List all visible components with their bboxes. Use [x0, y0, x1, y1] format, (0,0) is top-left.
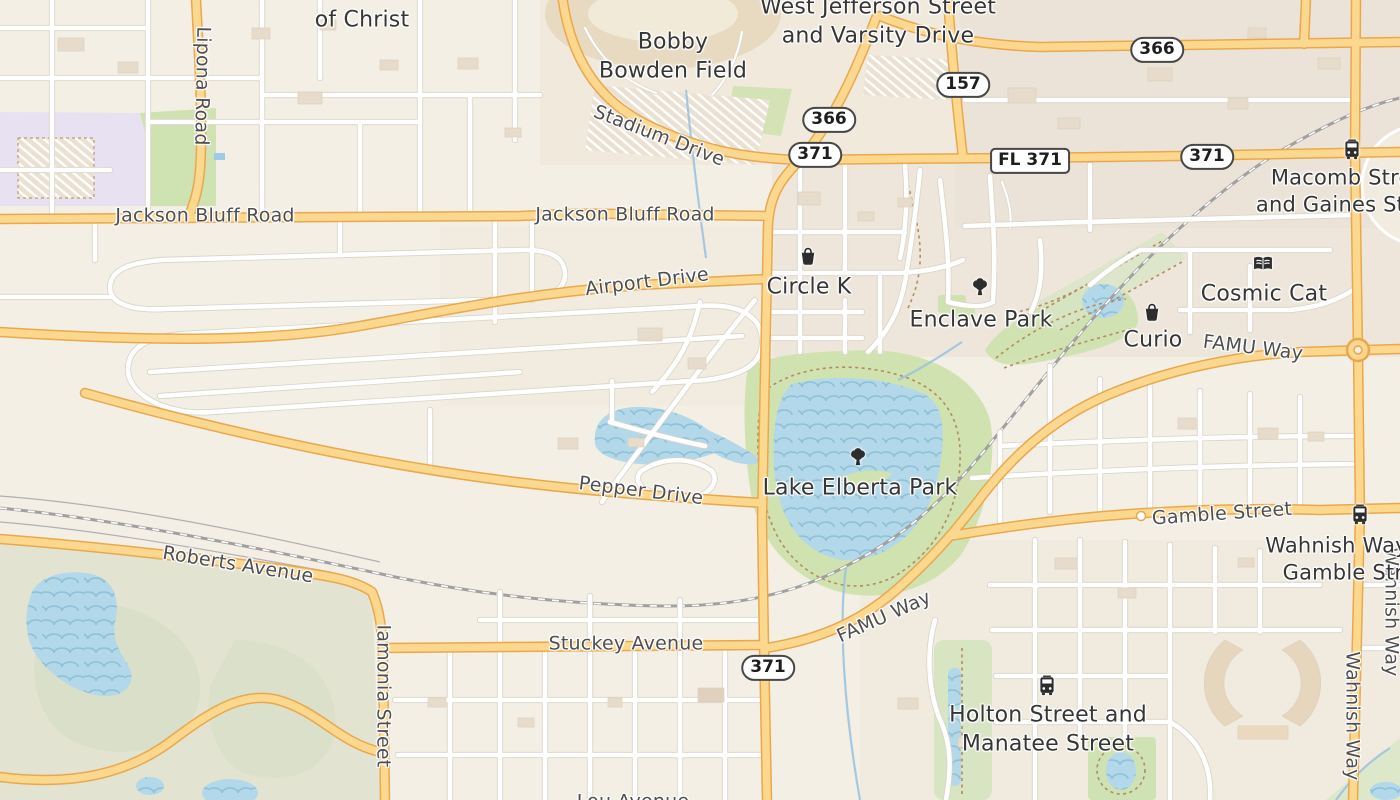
- map-label-famu-way-ne: FAMU Way: [1202, 330, 1305, 367]
- map-label-wahnish-way-e: Wahnish Way: [1379, 547, 1400, 676]
- bus-icon[interactable]: [1349, 504, 1371, 526]
- map-label-lou-avenue: Lou Avenue: [577, 790, 690, 800]
- route-shield-fl-371: FL 371: [990, 148, 1070, 174]
- route-shield-366: 366: [1130, 37, 1184, 63]
- bag-icon[interactable]: [1141, 301, 1163, 323]
- map-label-pepper-drive: Pepper Drive: [577, 471, 704, 511]
- map-label-roberts-avenue: Roberts Avenue: [161, 541, 315, 589]
- route-shield-371: 371: [741, 655, 795, 681]
- map-label-stadium-drive: Stadium Drive: [590, 100, 728, 173]
- map-label-west-jefferson-varsity[interactable]: West Jefferson Street and Varsity Drive: [760, 0, 996, 51]
- map-label-iamonia-street: Iamonia Street: [371, 625, 396, 768]
- map-label-lake-elberta-park[interactable]: Lake Elberta Park: [763, 475, 958, 504]
- map-label-wahnish-way-s: Wahnish Way: [1340, 651, 1365, 780]
- map-label-circle-k[interactable]: Circle K: [767, 274, 852, 303]
- map-label-curio[interactable]: Curio: [1124, 327, 1183, 356]
- route-shield-366: 366: [802, 107, 856, 133]
- map-label-macomb-gaines[interactable]: Macomb Street and Gaines Street: [1256, 165, 1400, 220]
- map-viewport[interactable]: Lipona RoadJackson Bluff RoadJackson Blu…: [0, 0, 1400, 800]
- book-icon[interactable]: [1252, 253, 1274, 275]
- map-label-famu-way-sw: FAMU Way: [833, 585, 935, 648]
- map-label-bobby-bowden-field[interactable]: Bobby Bowden Field: [599, 28, 747, 85]
- map-label-jackson-bluff-road-c: Jackson Bluff Road: [535, 203, 714, 228]
- map-overlay-layer: Lipona RoadJackson Bluff RoadJackson Blu…: [0, 0, 1400, 800]
- tree-icon[interactable]: [969, 277, 991, 299]
- map-label-wahnish-gamble[interactable]: Wahnish Way and Gamble Street: [1265, 533, 1400, 588]
- bag-icon[interactable]: [797, 245, 819, 267]
- map-label-gamble-street: Gamble Street: [1151, 497, 1293, 531]
- map-label-jackson-bluff-road-w: Jackson Bluff Road: [115, 204, 294, 229]
- route-shield-371: 371: [1180, 144, 1234, 170]
- map-label-lipona-road: Lipona Road: [189, 26, 216, 146]
- map-label-airport-drive: Airport Drive: [584, 262, 710, 302]
- route-shield-157: 157: [936, 72, 990, 98]
- map-label-stuckey-avenue: Stuckey Avenue: [549, 632, 704, 657]
- tree-icon[interactable]: [847, 447, 869, 469]
- bus-icon[interactable]: [1036, 675, 1058, 697]
- map-label-enclave-park[interactable]: Enclave Park: [909, 307, 1052, 336]
- map-label-cosmic-cat[interactable]: Cosmic Cat: [1201, 281, 1327, 310]
- map-label-holton-manatee[interactable]: Holton Street and Manatee Street: [949, 701, 1147, 758]
- bus-icon[interactable]: [1341, 139, 1363, 161]
- map-label-of-christ[interactable]: of Christ: [315, 7, 410, 36]
- route-shield-371: 371: [788, 142, 842, 168]
